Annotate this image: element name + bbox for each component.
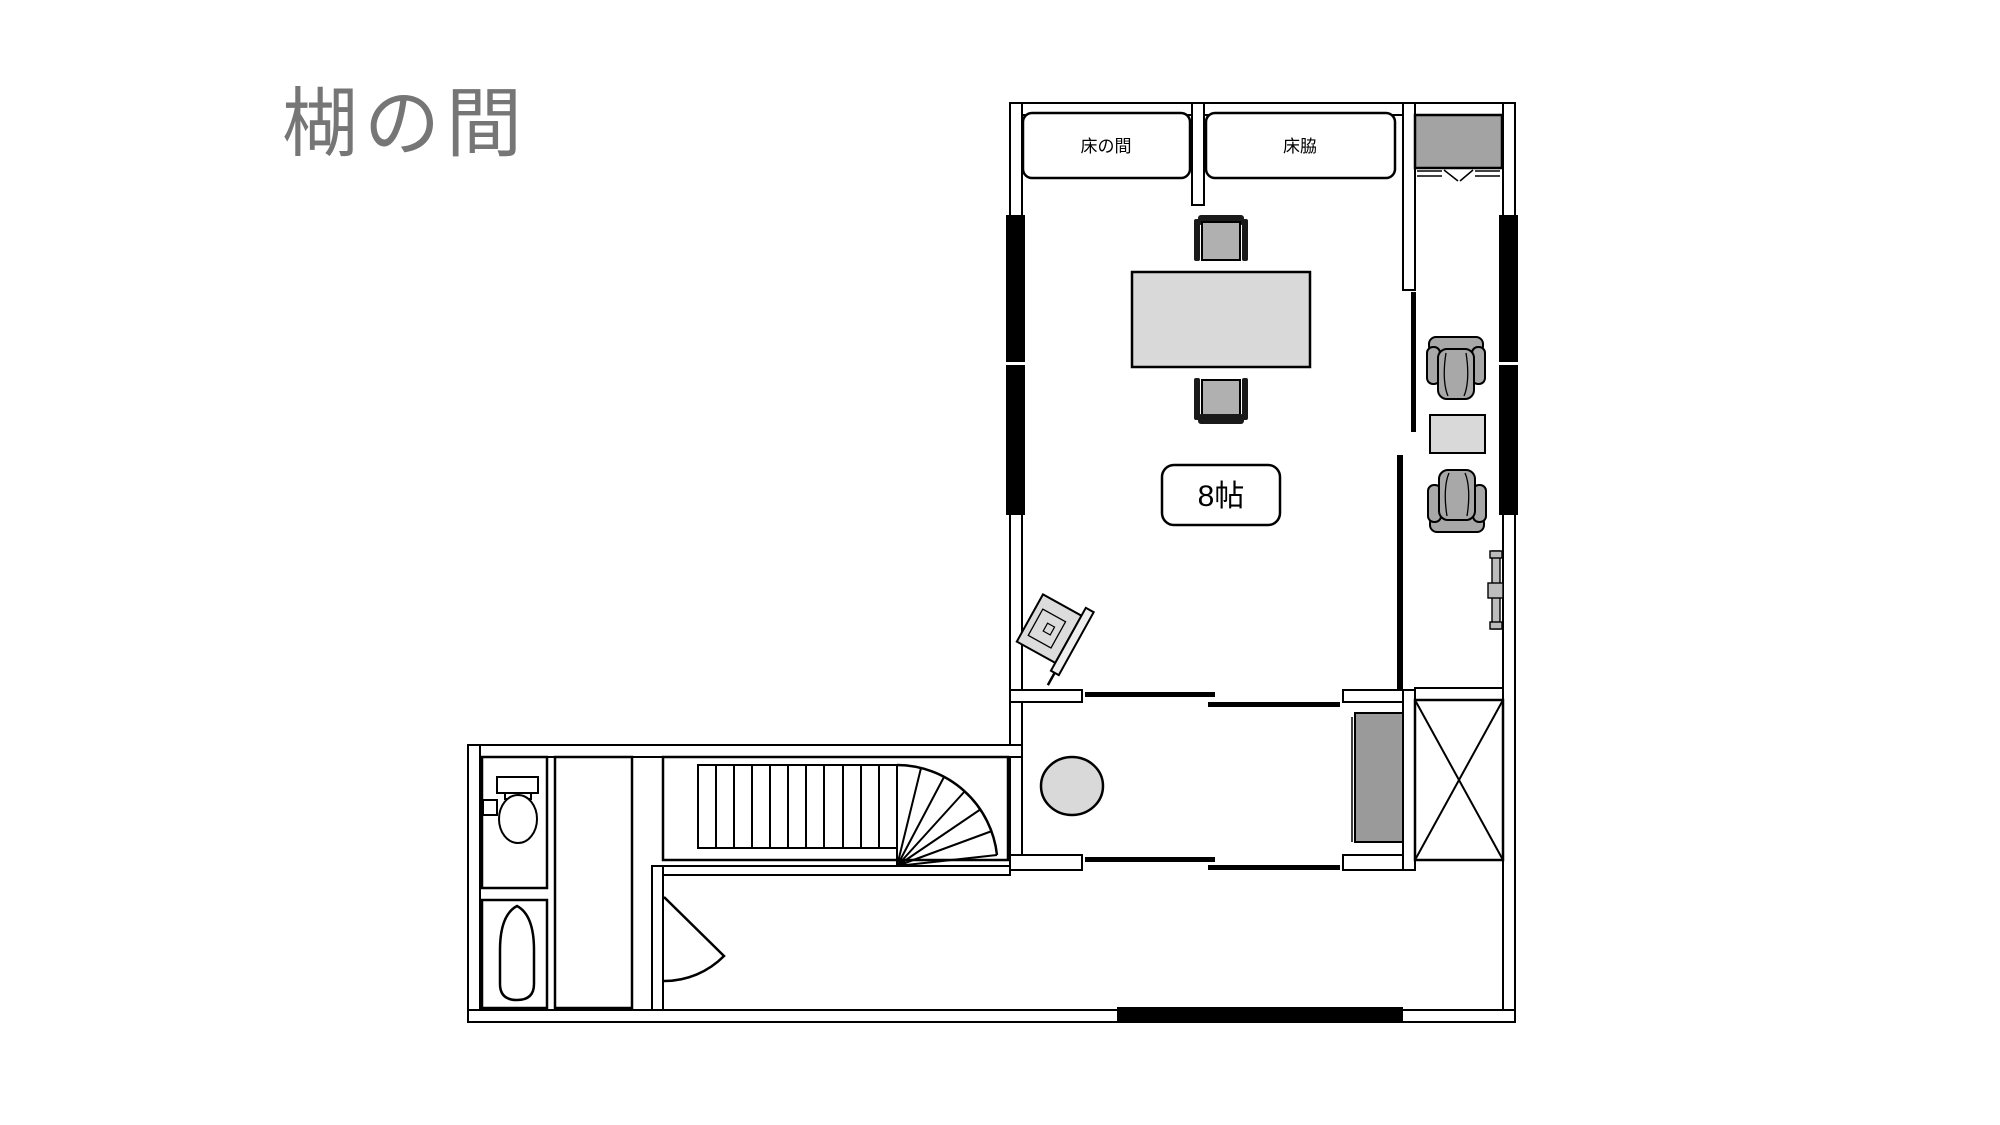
floor-chair-arm-left [1194,378,1200,420]
urinal [500,906,534,1000]
window-left-divider [1004,362,1027,365]
window-handle-cap-top [1490,551,1502,558]
window-handle [1488,551,1503,629]
floor-chair-back [1198,414,1244,424]
wall-hall-left [652,866,663,1010]
wall-entry-bottom-stub-left [1010,855,1082,870]
window-handle-cap-bottom [1490,622,1502,629]
floor-chair-seat [1202,222,1240,260]
armchair-top [1427,337,1485,399]
entry-stool [1041,757,1103,815]
closet-room [555,757,632,1008]
toilet-flush-valve [483,800,497,815]
side-table [1430,415,1485,453]
wall-hall-top [652,866,1010,875]
floor-chair-arm-right [1242,378,1248,420]
window-handle-grip [1488,583,1503,598]
floor-plan-drawing: 床の間 床脇 8帖 [0,0,2000,1125]
wall-xcloset-top [1415,688,1503,700]
tatami-size-label: 8帖 [1198,480,1245,513]
window-bottom [1117,1007,1403,1022]
sliding-door-entry-a [1085,857,1215,862]
floor-chair-bottom [1194,378,1248,424]
wall-wing-top [468,745,1022,757]
window-right-divider [1497,362,1520,365]
toilet-tank [497,777,538,793]
sliding-door-main-b [1208,702,1340,707]
wall-wing-left [468,745,480,1022]
wall-tokonoma-divider [1192,103,1204,205]
bifold-door [1417,170,1500,181]
stair-treads-box [698,765,897,848]
swing-door [664,897,724,981]
floor-chair-seat [1202,380,1240,418]
closet-gray [1415,115,1502,168]
floor-plan-page: 楜の間 [0,0,2000,1125]
floor-chair-arm-left [1194,219,1200,261]
armchair-bottom [1428,470,1486,532]
toilet-bowl [499,795,537,843]
wall-main-bottom-stub-left [1010,690,1082,702]
wall-entry-right [1403,690,1415,870]
tokowaki-label: 床脇 [1283,137,1317,156]
floor-chair-top [1194,215,1248,261]
sliding-panel-corridor-a [1411,292,1416,432]
tokonoma-label: 床の間 [1081,137,1132,156]
wall-corridor-divider-upper [1403,103,1415,290]
sliding-door-entry-b [1208,865,1340,870]
sliding-door-main-a [1085,692,1215,697]
alcoves [1023,113,1395,178]
floor-chair-arm-right [1242,219,1248,261]
tv-antenna [1047,672,1056,685]
sliding-panel-corridor-b [1397,455,1403,690]
chest [1355,713,1403,842]
page-title: 楜の間 [282,82,528,166]
low-table [1132,272,1310,367]
